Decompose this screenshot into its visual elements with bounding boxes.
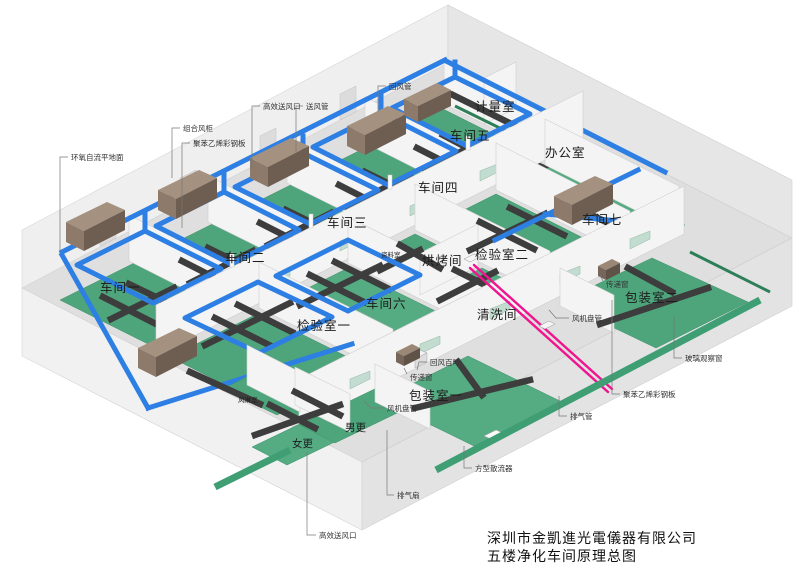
callout-hepa-bottom: 高效送风口	[319, 530, 357, 540]
room-label-baking: 烘烤间	[422, 253, 463, 268]
callout-return-duct: 回风管	[389, 81, 412, 91]
drawing-title: 五楼净化车间原理总图	[487, 548, 637, 565]
company-name: 深圳市金凱進光電儀器有限公司	[487, 530, 697, 547]
room-label-workshop3: 车间三	[327, 215, 368, 230]
wall-post	[388, 175, 392, 189]
callout-glass-window: 玻璃观察窗	[685, 353, 723, 363]
room-label-inspection2: 检验室二	[475, 247, 529, 262]
room-label-workshop2: 车间二	[225, 250, 266, 265]
wall-post	[309, 214, 313, 228]
callout-fan-coil-right: 风机盘管	[572, 313, 602, 323]
room-label-inspection1: 检验室一	[297, 318, 351, 333]
room-label-women-changing: 女更	[292, 437, 313, 450]
callout-square-diffuser: 方型散流器	[475, 463, 513, 473]
room-label-packing1: 包装室一	[409, 388, 463, 403]
room-label-dataroom: 资料室	[381, 250, 401, 259]
room-label-workshop5: 车间五	[450, 128, 491, 143]
room-label-workshop7: 车间七	[582, 212, 623, 227]
room-label-metrology: 计量室	[475, 99, 516, 114]
callout-combined-ahu: 组合风柜	[183, 123, 213, 133]
callout-epoxy-floor: 环氧自流平地面	[71, 152, 124, 162]
room-label-office: 办公室	[545, 145, 586, 160]
room-label-workshop6: 车间六	[366, 296, 407, 311]
callout-polystyrene-top: 聚苯乙烯彩钢板	[193, 138, 246, 148]
callout-return-louver: 回风百叶	[430, 358, 460, 367]
callout-exhaust-duct: 排气管	[570, 411, 593, 421]
callout-pass-window-center: 传递窗	[410, 372, 433, 382]
room-label-packing2: 包装室二	[625, 290, 679, 305]
isometric-cleanroom-diagram: 车间一 车间二 车间三 车间四 车间五 计量室 办公室 车间六 检验室一 资料室…	[0, 0, 800, 587]
room-label-workshop1: 车间一	[100, 280, 141, 295]
callout-fan-coil-center: 风机盘管	[387, 403, 417, 413]
callout-supply-duct: 送风管	[306, 101, 329, 111]
callout-hepa-top: 高效送风口	[263, 101, 301, 111]
callout-pass-window-right: 传递窗	[606, 279, 629, 289]
title-block: 深圳市金凱進光電儀器有限公司 五楼净化车间原理总图	[487, 530, 697, 565]
room-label-airshower: 风淋室	[238, 395, 258, 404]
diagram-canvas: 车间一 车间二 车间三 车间四 车间五 计量室 办公室 车间六 检验室一 资料室…	[0, 0, 800, 587]
room-label-men-changing: 男更	[345, 422, 366, 434]
room-label-workshop4: 车间四	[418, 180, 459, 195]
callout-exhaust-fan: 排气扇	[397, 490, 420, 500]
callout-polystyrene-right: 聚苯乙烯彩钢板	[623, 389, 676, 399]
room-label-cleaning: 清洗间	[477, 308, 518, 322]
